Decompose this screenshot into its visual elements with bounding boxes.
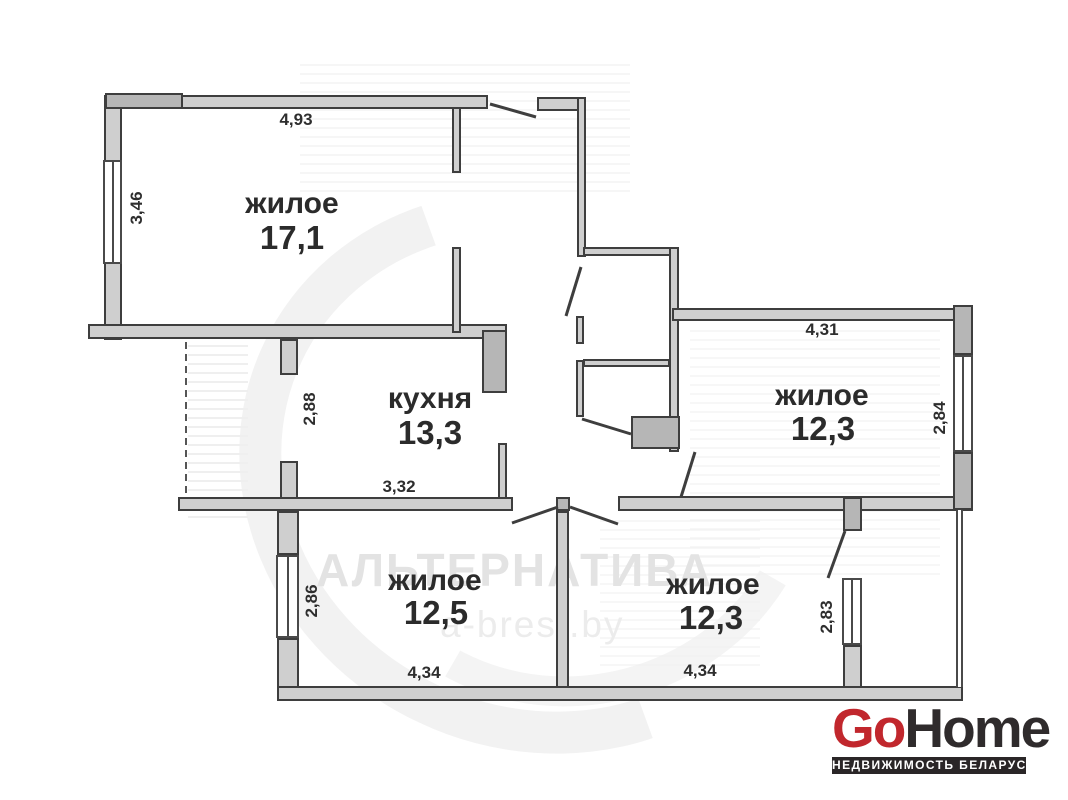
- dim-living-4-height: 2,83: [817, 600, 837, 633]
- wall-segment: [631, 416, 680, 449]
- dim-kitchen-height: 2,88: [300, 392, 320, 425]
- balcony-edge: [956, 510, 963, 687]
- wall-segment: [88, 324, 507, 339]
- wall-segment: [482, 330, 507, 393]
- room-area-living-1: 17,1: [260, 219, 324, 257]
- wall-segment: [498, 443, 507, 499]
- wall-segment: [953, 452, 973, 510]
- room-area-living-3: 12,5: [404, 594, 468, 632]
- wall-segment: [576, 360, 584, 417]
- window: [953, 355, 973, 452]
- dim-living-1-height: 3,46: [127, 191, 147, 224]
- wall-segment: [583, 247, 678, 256]
- logo-tagline: НЕДВИЖИМОСТЬ БЕЛАРУСИ: [832, 757, 1026, 774]
- dim-kitchen-width: 3,32: [382, 477, 415, 497]
- wall-segment: [178, 497, 513, 511]
- wall-segment: [953, 305, 973, 355]
- room-area-kitchen: 13,3: [398, 414, 462, 452]
- window: [842, 578, 862, 645]
- wall-segment: [843, 497, 862, 531]
- wall-segment: [556, 511, 569, 688]
- wall-segment: [280, 461, 298, 499]
- dim-living-2-height: 2,84: [930, 401, 950, 434]
- dim-living-1-width: 4,93: [279, 110, 312, 130]
- window: [276, 555, 299, 638]
- logo-home-text: Home: [904, 697, 1049, 759]
- room-area-living-2: 12,3: [791, 410, 855, 448]
- room-label-living-4: жилое: [666, 568, 759, 602]
- room-label-kitchen: кухня: [388, 382, 472, 416]
- floor-plan: АЛЬТЕРНАТИВА a-brest.by: [0, 0, 1068, 800]
- dim-living-3-width: 4,34: [407, 663, 440, 683]
- wall-segment: [452, 247, 461, 333]
- wall-segment: [277, 511, 299, 555]
- gohome-logo: GoHome НЕДВИЖИМОСТЬ БЕЛАРУСИ: [832, 700, 1026, 774]
- wall-segment: [280, 339, 298, 375]
- wall-segment: [452, 107, 461, 173]
- gohome-logo-text: GoHome: [832, 700, 1026, 756]
- dim-living-2-width: 4,31: [805, 320, 838, 340]
- dim-living-3-height: 2,86: [302, 584, 322, 617]
- room-label-living-1: жилое: [245, 187, 338, 221]
- wall-segment: [583, 359, 670, 367]
- wall-segment: [556, 497, 570, 511]
- room-label-living-3: жилое: [388, 564, 481, 598]
- wall-segment: [576, 316, 584, 344]
- watermark-agency-name: АЛЬТЕРНАТИВА: [316, 543, 713, 597]
- wall-segment: [105, 93, 183, 109]
- wall-segment: [618, 496, 973, 511]
- wall-segment: [577, 97, 586, 257]
- window: [103, 160, 122, 264]
- wall-segment: [277, 638, 299, 688]
- room-area-living-4: 12,3: [679, 599, 743, 637]
- wall-segment: [843, 645, 862, 688]
- dim-living-4-width: 4,34: [683, 661, 716, 681]
- logo-go-text: Go: [832, 697, 904, 759]
- room-label-living-2: жилое: [775, 379, 868, 413]
